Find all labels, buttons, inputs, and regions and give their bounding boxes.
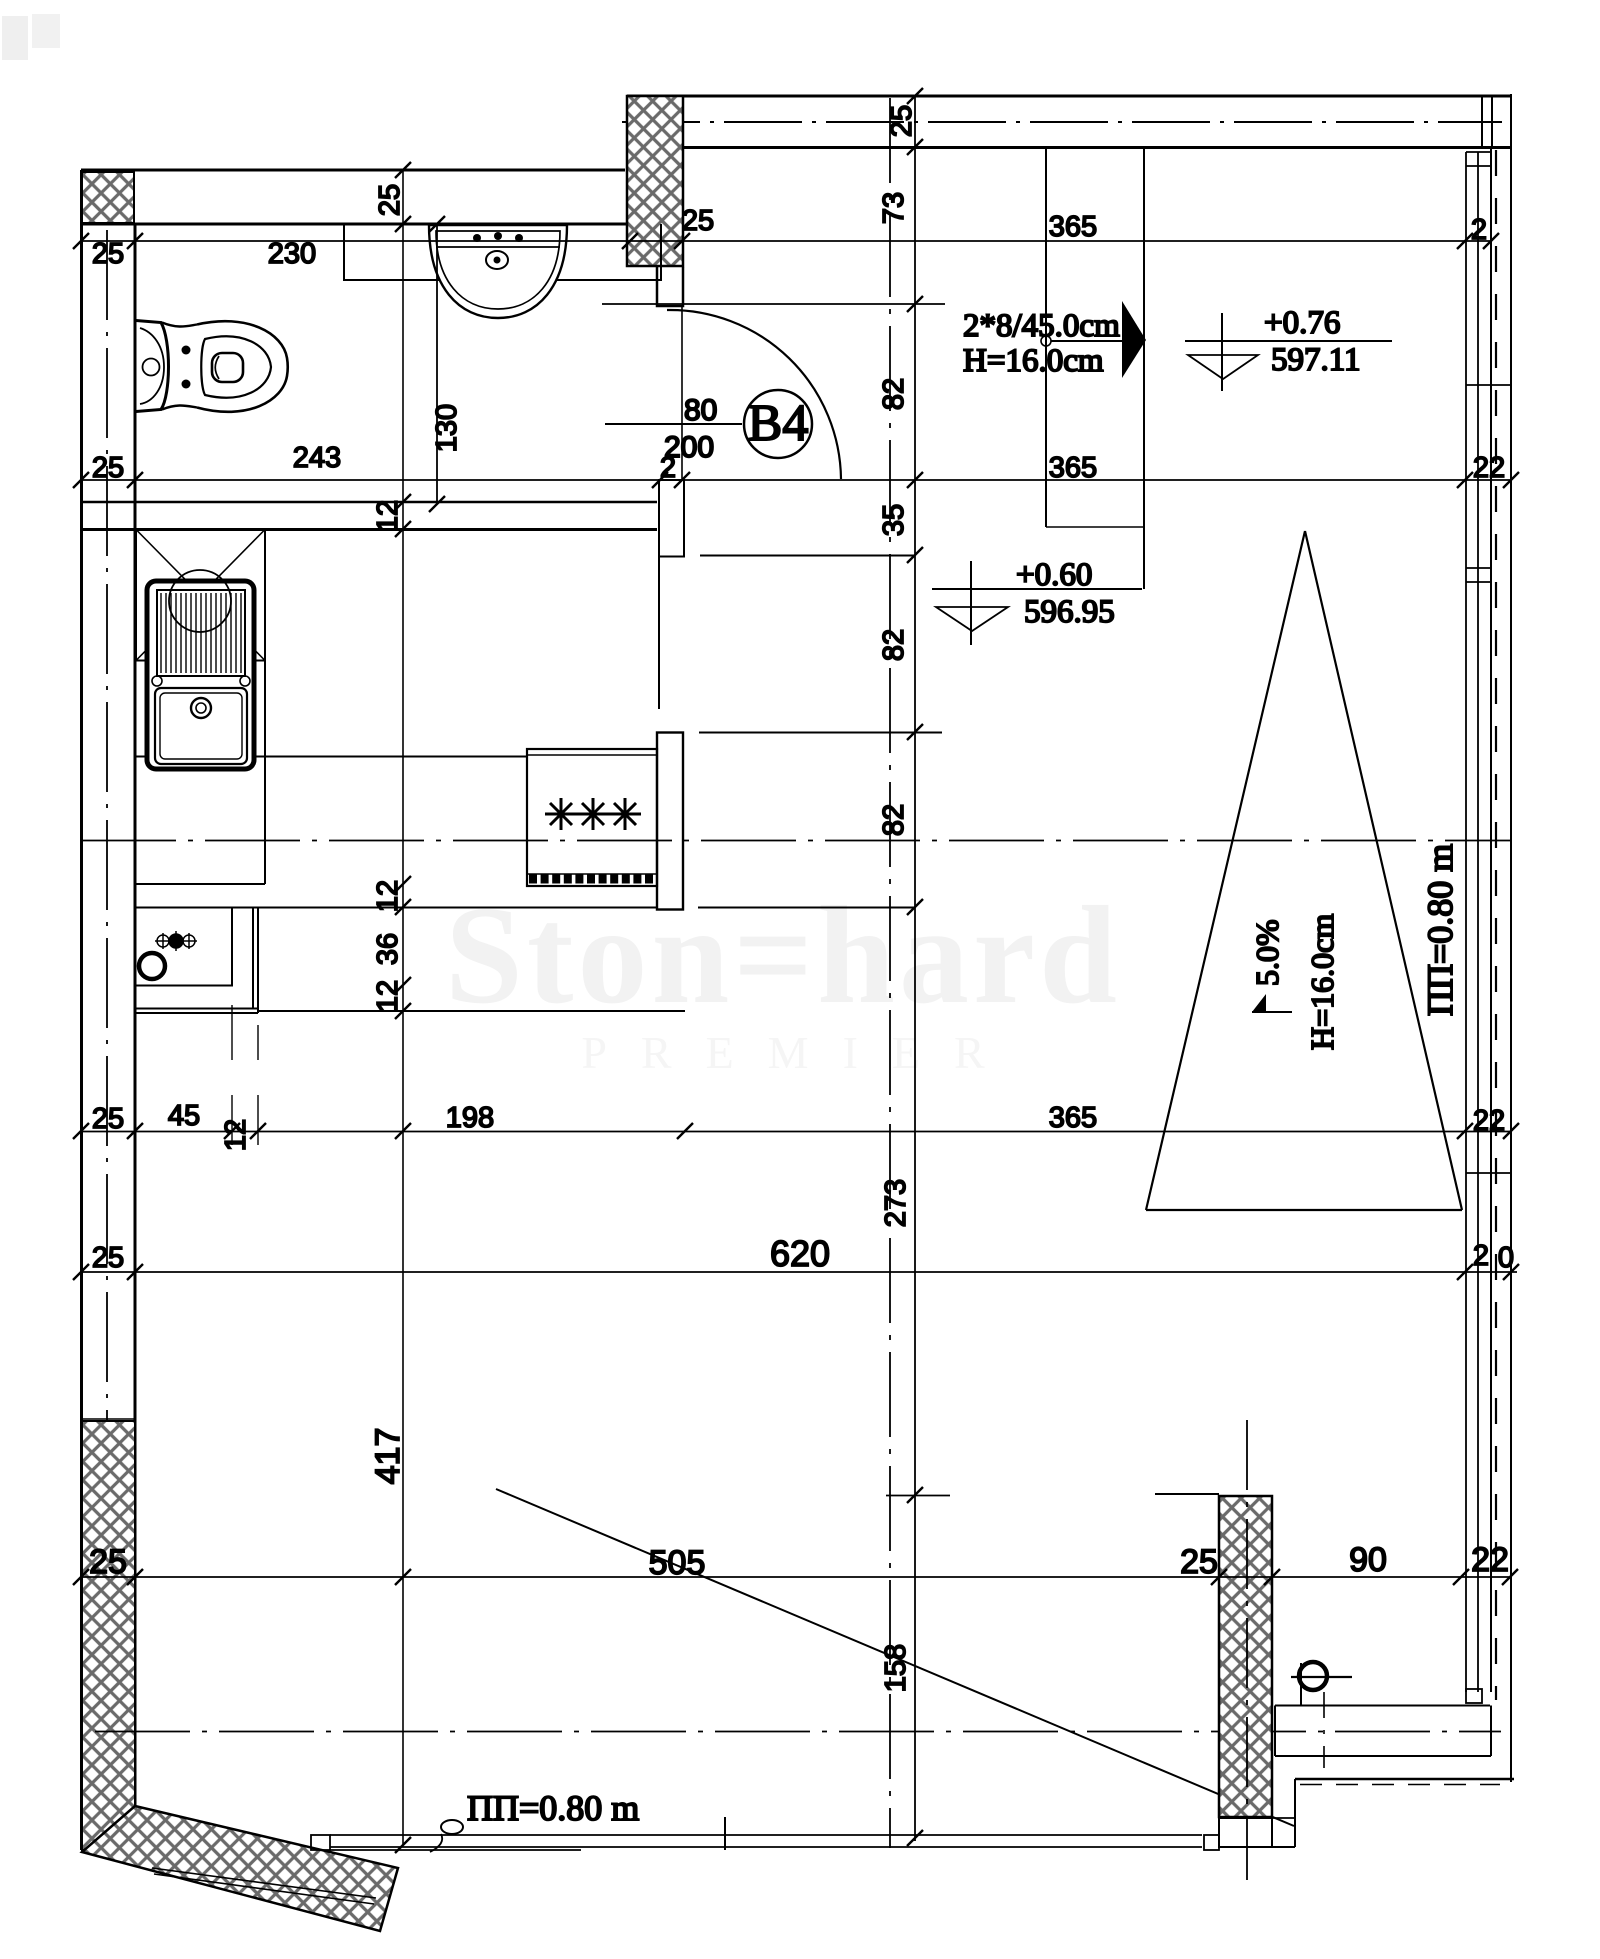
- svg-text:273: 273: [880, 1179, 912, 1227]
- svg-text:2*8/45.0cm: 2*8/45.0cm: [963, 308, 1120, 344]
- svg-text:Ston=hard: Ston=hard: [445, 878, 1121, 1033]
- svg-text:22: 22: [1473, 1105, 1505, 1137]
- svg-text:H=16.0cm: H=16.0cm: [1304, 914, 1340, 1050]
- svg-text:2: 2: [660, 452, 676, 484]
- svg-text:620: 620: [770, 1233, 830, 1274]
- svg-text:+0.76: +0.76: [1264, 305, 1340, 341]
- svg-text:2: 2: [1471, 214, 1487, 246]
- svg-text:25: 25: [92, 452, 124, 484]
- svg-text:130: 130: [431, 404, 463, 452]
- svg-text:82: 82: [878, 378, 910, 410]
- svg-text:158: 158: [880, 1644, 912, 1692]
- svg-text:0: 0: [1498, 1242, 1514, 1274]
- svg-text:365: 365: [1049, 211, 1097, 243]
- svg-text:5.0%: 5.0%: [1249, 919, 1285, 986]
- svg-text:12: 12: [372, 500, 404, 532]
- svg-text:2: 2: [1473, 1240, 1489, 1272]
- svg-text:ПП=0.80 m: ПП=0.80 m: [467, 1788, 639, 1828]
- svg-text:H=16.0cm: H=16.0cm: [963, 343, 1104, 379]
- svg-text:ПП=0.80 m: ПП=0.80 m: [1420, 844, 1460, 1016]
- svg-text:25: 25: [682, 205, 714, 237]
- svg-text:73: 73: [878, 192, 910, 224]
- svg-text:82: 82: [878, 629, 910, 661]
- svg-text:230: 230: [268, 238, 316, 270]
- svg-text:25: 25: [89, 1543, 127, 1581]
- svg-text:243: 243: [293, 442, 341, 474]
- svg-text:596.95: 596.95: [1024, 594, 1115, 630]
- svg-text:12: 12: [372, 880, 404, 912]
- svg-text:25: 25: [374, 184, 406, 216]
- svg-text:365: 365: [1049, 1102, 1097, 1134]
- svg-text:80: 80: [684, 394, 717, 427]
- svg-text:+0.60: +0.60: [1016, 557, 1092, 593]
- svg-text:PREMIER: PREMIER: [581, 1027, 1018, 1078]
- svg-text:25: 25: [886, 105, 918, 137]
- svg-text:36: 36: [372, 933, 404, 965]
- svg-text:25: 25: [92, 1242, 124, 1274]
- svg-text:22: 22: [1473, 452, 1505, 484]
- svg-text:12: 12: [220, 1119, 252, 1151]
- svg-text:597.11: 597.11: [1271, 342, 1361, 378]
- svg-text:25: 25: [1180, 1543, 1218, 1581]
- svg-text:25: 25: [92, 238, 124, 270]
- svg-text:82: 82: [878, 804, 910, 836]
- svg-text:90: 90: [1349, 1541, 1387, 1579]
- svg-text:B4: B4: [748, 395, 809, 452]
- svg-text:45: 45: [168, 1100, 200, 1132]
- svg-text:365: 365: [1049, 452, 1097, 484]
- svg-text:198: 198: [446, 1102, 494, 1134]
- svg-text:12: 12: [372, 980, 404, 1012]
- svg-text:22: 22: [1471, 1541, 1509, 1579]
- svg-text:505: 505: [649, 1544, 706, 1582]
- svg-text:25: 25: [92, 1103, 124, 1135]
- svg-text:35: 35: [878, 504, 910, 536]
- svg-text:417: 417: [369, 1428, 407, 1485]
